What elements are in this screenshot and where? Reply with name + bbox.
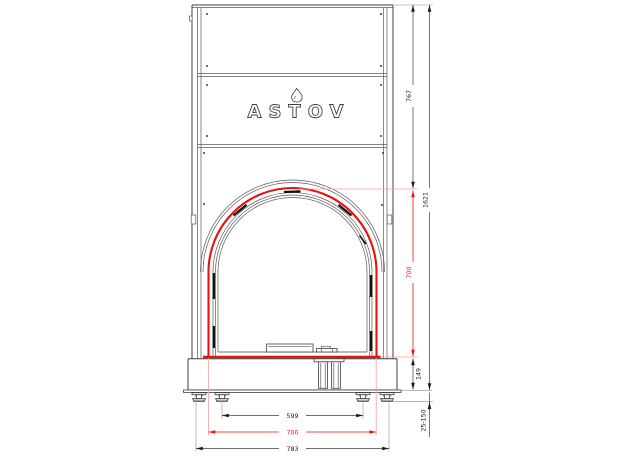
flame-icon bbox=[292, 89, 303, 103]
brand-logo-text: ASTOV bbox=[248, 102, 351, 123]
foot-outer-left bbox=[192, 393, 206, 402]
feet bbox=[192, 393, 394, 402]
dim-label-opening-height: 700 bbox=[406, 266, 413, 278]
door-frame-line-2 bbox=[216, 195, 370, 356]
stove-frame bbox=[190, 5, 394, 359]
grate-side-piece bbox=[317, 348, 338, 352]
pedestal-flange bbox=[314, 359, 344, 362]
dim-label-plinth-height: 149 bbox=[416, 368, 423, 380]
top-bracket bbox=[284, 191, 301, 192]
foot-inner-left bbox=[215, 393, 229, 402]
foot-inner-right bbox=[356, 393, 370, 402]
door-arch bbox=[201, 180, 385, 357]
plinth bbox=[184, 359, 402, 393]
dim-label-leg-range: 25-150 bbox=[421, 409, 428, 431]
dim-plinth-height: 149 bbox=[413, 359, 423, 390]
dim-upper-height: 767 bbox=[406, 5, 413, 189]
dim-label-upper-height: 767 bbox=[406, 90, 413, 102]
outer-arch-line-1 bbox=[201, 180, 385, 272]
door-glass-red-outline bbox=[209, 188, 377, 357]
pedestal-channel-left bbox=[319, 362, 328, 389]
pedestal bbox=[314, 359, 344, 389]
right-latch bbox=[387, 215, 392, 224]
left-edge-tab bbox=[190, 16, 193, 21]
fireplace-front-view-drawing: ASTOV bbox=[0, 0, 624, 460]
grate bbox=[267, 344, 338, 352]
dim-label-overall-width: 783 bbox=[286, 446, 298, 453]
dim-label-leg-spacing: 599 bbox=[286, 413, 298, 420]
technical-drawing-canvas: ASTOV bbox=[0, 0, 624, 460]
plinth-bottom-strip bbox=[184, 390, 402, 392]
door-frame-line-1 bbox=[213, 193, 372, 356]
dim-overall-width: 783 bbox=[196, 446, 389, 453]
brand-logo: ASTOV bbox=[248, 89, 351, 123]
dim-opening-width: 700 bbox=[209, 430, 377, 437]
dim-label-total-height: 1621 bbox=[423, 192, 430, 208]
dim-leg-spacing: 599 bbox=[222, 413, 363, 420]
grate-tray bbox=[267, 344, 314, 352]
foot-outer-right bbox=[380, 393, 394, 402]
dim-opening-height: 700 bbox=[406, 191, 413, 357]
left-latch bbox=[191, 215, 196, 224]
dim-leg-range: 25-150 bbox=[421, 393, 430, 438]
dim-label-opening-width: 700 bbox=[286, 430, 298, 437]
dim-total-height: 1621 bbox=[423, 5, 430, 390]
pedestal-channel-right bbox=[332, 362, 341, 389]
door-frame-line-3 bbox=[218, 198, 367, 353]
door-fittings bbox=[214, 191, 371, 351]
